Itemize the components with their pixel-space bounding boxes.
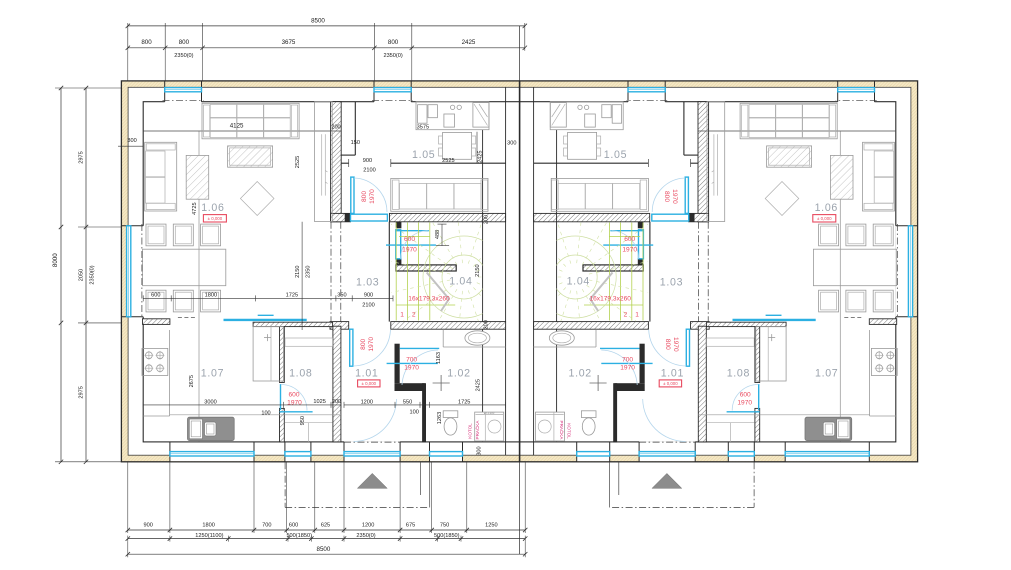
- svg-text:900: 900: [144, 523, 153, 529]
- svg-text:600: 600: [624, 236, 635, 243]
- svg-text:800: 800: [663, 191, 670, 202]
- svg-text:1970: 1970: [672, 337, 679, 352]
- svg-text:1970: 1970: [368, 337, 375, 352]
- svg-text:1.03: 1.03: [660, 277, 683, 289]
- svg-text:1163: 1163: [436, 352, 442, 364]
- svg-text:1.01: 1.01: [661, 367, 684, 379]
- svg-text:488: 488: [435, 230, 441, 239]
- svg-text:2425: 2425: [462, 39, 476, 46]
- svg-text:2350(0): 2350(0): [90, 265, 96, 284]
- svg-text:KOTOL: KOTOL: [468, 423, 473, 439]
- svg-text:1.06: 1.06: [815, 202, 838, 214]
- svg-text:1970: 1970: [402, 247, 417, 254]
- svg-text:ET-1300: ET-1300: [484, 411, 495, 415]
- svg-text:± 0,000: ± 0,000: [663, 381, 678, 386]
- svg-text:± 0,000: ± 0,000: [208, 216, 223, 221]
- svg-text:300: 300: [507, 141, 516, 147]
- svg-text:800: 800: [361, 191, 368, 202]
- svg-text:1.06: 1.06: [201, 202, 224, 214]
- svg-text:2100: 2100: [363, 167, 375, 173]
- svg-text:150: 150: [351, 140, 360, 146]
- svg-text:1.04: 1.04: [567, 276, 590, 288]
- svg-text:2975: 2975: [78, 151, 84, 163]
- svg-text:800: 800: [179, 39, 190, 46]
- svg-text:800: 800: [664, 339, 671, 350]
- svg-text:1725: 1725: [286, 293, 298, 299]
- svg-text:1263: 1263: [437, 412, 443, 424]
- svg-text:2350(0): 2350(0): [174, 53, 193, 59]
- svg-text:1.07: 1.07: [201, 368, 224, 380]
- svg-text:800: 800: [141, 39, 152, 46]
- svg-text:1.02: 1.02: [568, 368, 591, 380]
- svg-text:1: 1: [635, 312, 639, 319]
- svg-text:2675: 2675: [189, 375, 195, 387]
- svg-text:200: 200: [483, 215, 489, 224]
- svg-text:2: 2: [412, 312, 416, 319]
- svg-text:1.07: 1.07: [815, 368, 838, 380]
- svg-text:4125: 4125: [230, 123, 244, 130]
- svg-text:1970: 1970: [622, 247, 637, 254]
- svg-text:950: 950: [300, 416, 306, 425]
- svg-text:2350(0): 2350(0): [383, 53, 402, 59]
- svg-text:KOTOL: KOTOL: [567, 423, 572, 439]
- svg-text:100: 100: [410, 410, 419, 416]
- svg-text:3675: 3675: [282, 39, 296, 46]
- svg-text:1: 1: [400, 312, 404, 319]
- svg-text:2350: 2350: [305, 265, 311, 277]
- svg-text:16x179,3x260: 16x179,3x260: [408, 296, 450, 303]
- svg-text:1250(1100): 1250(1100): [195, 533, 223, 539]
- svg-text:1.05: 1.05: [604, 149, 627, 161]
- svg-text:2100: 2100: [362, 303, 374, 309]
- svg-text:500(1850): 500(1850): [286, 533, 312, 539]
- svg-text:675: 675: [406, 523, 415, 529]
- svg-text:1970: 1970: [620, 365, 635, 372]
- svg-text:1970: 1970: [287, 399, 302, 406]
- svg-text:900: 900: [363, 158, 372, 164]
- svg-text:200: 200: [483, 320, 489, 329]
- svg-text:800: 800: [360, 338, 367, 349]
- svg-text:3575: 3575: [417, 125, 429, 131]
- svg-text:1250: 1250: [485, 523, 497, 529]
- svg-text:600: 600: [740, 391, 751, 398]
- svg-text:16x179,3x260: 16x179,3x260: [589, 296, 631, 303]
- svg-text:1.05: 1.05: [412, 149, 435, 161]
- svg-text:1725: 1725: [458, 399, 470, 405]
- svg-text:1970: 1970: [404, 365, 419, 372]
- svg-text:1.04: 1.04: [449, 276, 472, 288]
- svg-text:1970: 1970: [671, 189, 678, 204]
- svg-text:1.02: 1.02: [447, 368, 470, 380]
- svg-text:500(1850): 500(1850): [434, 533, 460, 539]
- svg-text:700: 700: [262, 523, 271, 529]
- svg-text:2425: 2425: [478, 150, 484, 162]
- svg-text:8500: 8500: [317, 546, 331, 553]
- svg-text:900: 900: [364, 293, 373, 299]
- svg-text:700: 700: [406, 357, 417, 364]
- svg-text:2425: 2425: [475, 379, 481, 391]
- svg-text:2050: 2050: [78, 269, 84, 281]
- svg-text:700: 700: [622, 357, 633, 364]
- svg-text:300: 300: [127, 138, 136, 144]
- svg-text:1200: 1200: [362, 523, 374, 529]
- svg-text:± 0,000: ± 0,000: [361, 381, 376, 386]
- svg-text:8500: 8500: [311, 17, 325, 24]
- svg-text:4725: 4725: [192, 202, 198, 214]
- svg-text:550: 550: [403, 399, 412, 405]
- svg-text:100: 100: [261, 410, 270, 416]
- svg-text:200: 200: [331, 124, 340, 130]
- svg-text:2350(0): 2350(0): [356, 533, 375, 539]
- svg-text:200: 200: [332, 399, 341, 405]
- svg-text:1.01: 1.01: [355, 367, 378, 379]
- svg-text:PRAČKA: PRAČKA: [474, 420, 480, 440]
- svg-text:1800: 1800: [202, 523, 214, 529]
- svg-text:1025: 1025: [313, 399, 325, 405]
- svg-text:2150: 2150: [295, 265, 301, 277]
- svg-text:1.08: 1.08: [289, 368, 312, 380]
- svg-text:± 0,000: ± 0,000: [817, 216, 832, 221]
- svg-text:1.08: 1.08: [727, 368, 750, 380]
- svg-text:2: 2: [624, 312, 628, 319]
- svg-text:2975: 2975: [78, 386, 84, 398]
- svg-text:600: 600: [404, 236, 415, 243]
- svg-text:600: 600: [151, 293, 160, 299]
- svg-text:2525: 2525: [442, 158, 454, 164]
- svg-text:600: 600: [289, 523, 298, 529]
- svg-text:PRAČKA: PRAČKA: [559, 421, 565, 441]
- svg-text:3000: 3000: [204, 399, 216, 405]
- svg-text:2150: 2150: [475, 264, 481, 276]
- svg-text:800: 800: [388, 39, 399, 46]
- svg-text:1800: 1800: [205, 293, 217, 299]
- svg-text:600: 600: [288, 391, 299, 398]
- svg-text:350: 350: [337, 293, 346, 299]
- svg-text:625: 625: [321, 523, 330, 529]
- svg-text:750: 750: [440, 523, 449, 529]
- svg-text:1200: 1200: [361, 399, 373, 405]
- svg-text:300: 300: [477, 446, 483, 455]
- svg-text:2525: 2525: [295, 156, 301, 168]
- svg-text:8000: 8000: [52, 253, 59, 267]
- svg-text:1970: 1970: [737, 399, 752, 406]
- svg-text:1.03: 1.03: [356, 277, 379, 289]
- svg-text:1970: 1970: [369, 189, 376, 204]
